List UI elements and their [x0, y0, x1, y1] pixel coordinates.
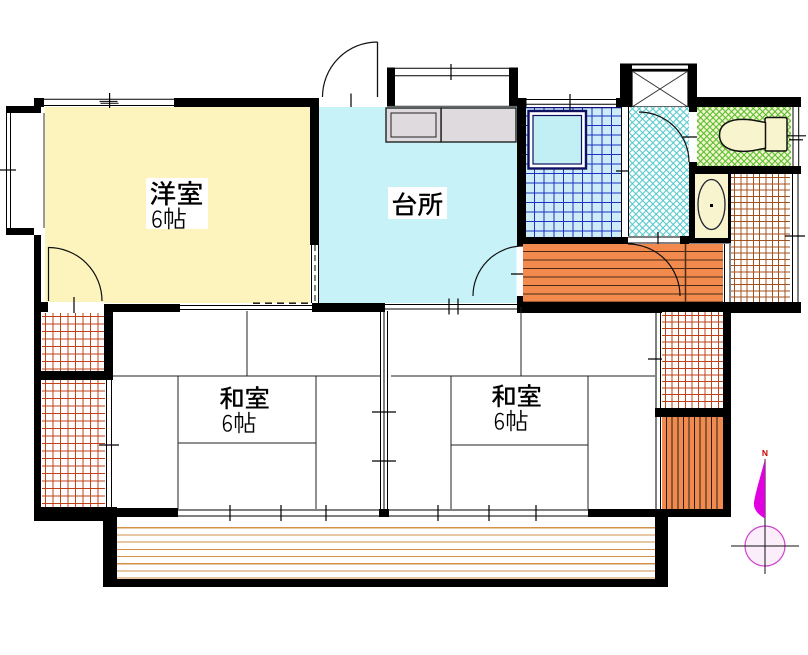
svg-text:N: N	[762, 448, 768, 458]
